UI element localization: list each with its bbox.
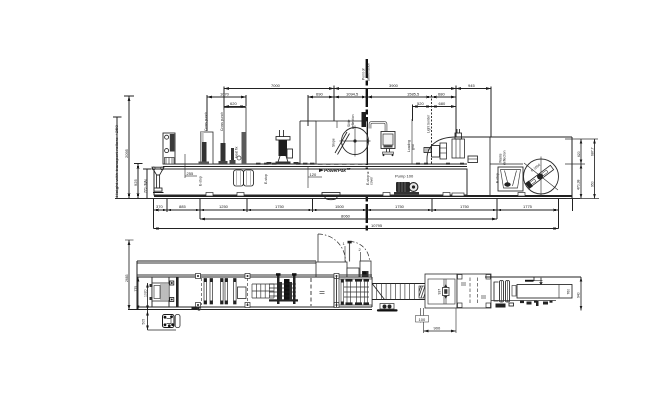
svg-text:E-stop: E-stop [496, 173, 500, 183]
svg-text:8060: 8060 [341, 213, 351, 218]
svg-text:100: 100 [419, 317, 426, 322]
svg-text:10795: 10795 [371, 223, 383, 228]
svg-text:2095: 2095 [124, 148, 129, 158]
svg-text:770 (MA): 770 (MA) [143, 179, 147, 193]
svg-text:Height with transport rollers: Height with transport rollers +250 [115, 125, 119, 197]
svg-text:950: 950 [591, 181, 595, 187]
svg-text:940: 940 [577, 292, 581, 298]
svg-text:900: 900 [434, 325, 441, 330]
svg-text:1250: 1250 [219, 204, 229, 209]
svg-text:Pump 100: Pump 100 [395, 174, 414, 179]
svg-text:255: 255 [187, 171, 194, 176]
svg-text:620: 620 [577, 151, 581, 157]
svg-text:1094,5: 1094,5 [346, 91, 359, 96]
svg-text:cover: cover [370, 176, 374, 185]
svg-text:620: 620 [230, 101, 237, 106]
svg-text:937: 937 [438, 289, 442, 295]
svg-text:1585,5: 1585,5 [407, 91, 420, 96]
svg-text:687,7: 687,7 [591, 147, 595, 156]
svg-text:680: 680 [439, 101, 446, 106]
svg-text:2683: 2683 [125, 274, 129, 282]
svg-text:370: 370 [156, 204, 163, 209]
svg-text:E-stop: E-stop [264, 174, 268, 184]
svg-text:690: 690 [316, 91, 323, 96]
svg-text:Cross punch: Cross punch [220, 112, 224, 131]
svg-text:Light border: Light border [427, 114, 431, 133]
svg-text:Cross punch: Cross punch [204, 112, 208, 131]
svg-text:470,38: 470,38 [577, 180, 581, 190]
svg-text:E-stop: E-stop [199, 176, 203, 186]
svg-text:1750: 1750 [275, 204, 285, 209]
svg-text:3900: 3900 [389, 83, 399, 88]
svg-text:Slope: Slope [332, 138, 336, 147]
svg-text:680: 680 [438, 91, 445, 96]
svg-text:1750: 1750 [395, 204, 405, 209]
svg-text:7000: 7000 [271, 83, 281, 88]
svg-text:925: 925 [133, 179, 138, 186]
svg-text:885: 885 [179, 204, 186, 209]
svg-text:Heat fix: Heat fix [235, 146, 239, 158]
svg-text:RT: RT [347, 167, 351, 171]
svg-text:1020: 1020 [144, 289, 148, 297]
svg-text:945: 945 [468, 83, 475, 88]
svg-text:1775: 1775 [523, 204, 533, 209]
svg-text:PowerPak: PowerPak [324, 168, 346, 173]
svg-text:505: 505 [142, 319, 146, 325]
svg-text:alimentation: alimentation [367, 63, 371, 81]
svg-text:1500: 1500 [335, 204, 345, 209]
svg-text:deflection: deflection [503, 150, 507, 165]
svg-text:1070: 1070 [220, 91, 230, 96]
svg-text:760: 760 [567, 289, 571, 295]
svg-text:grid: grid [411, 144, 415, 150]
svg-text:1750: 1750 [460, 204, 470, 209]
svg-text:Point of: Point of [362, 68, 366, 80]
svg-text:120: 120 [310, 172, 317, 177]
svg-text:520: 520 [417, 101, 424, 106]
svg-text:deflection: deflection [351, 114, 355, 129]
svg-text:775: 775 [134, 286, 138, 292]
